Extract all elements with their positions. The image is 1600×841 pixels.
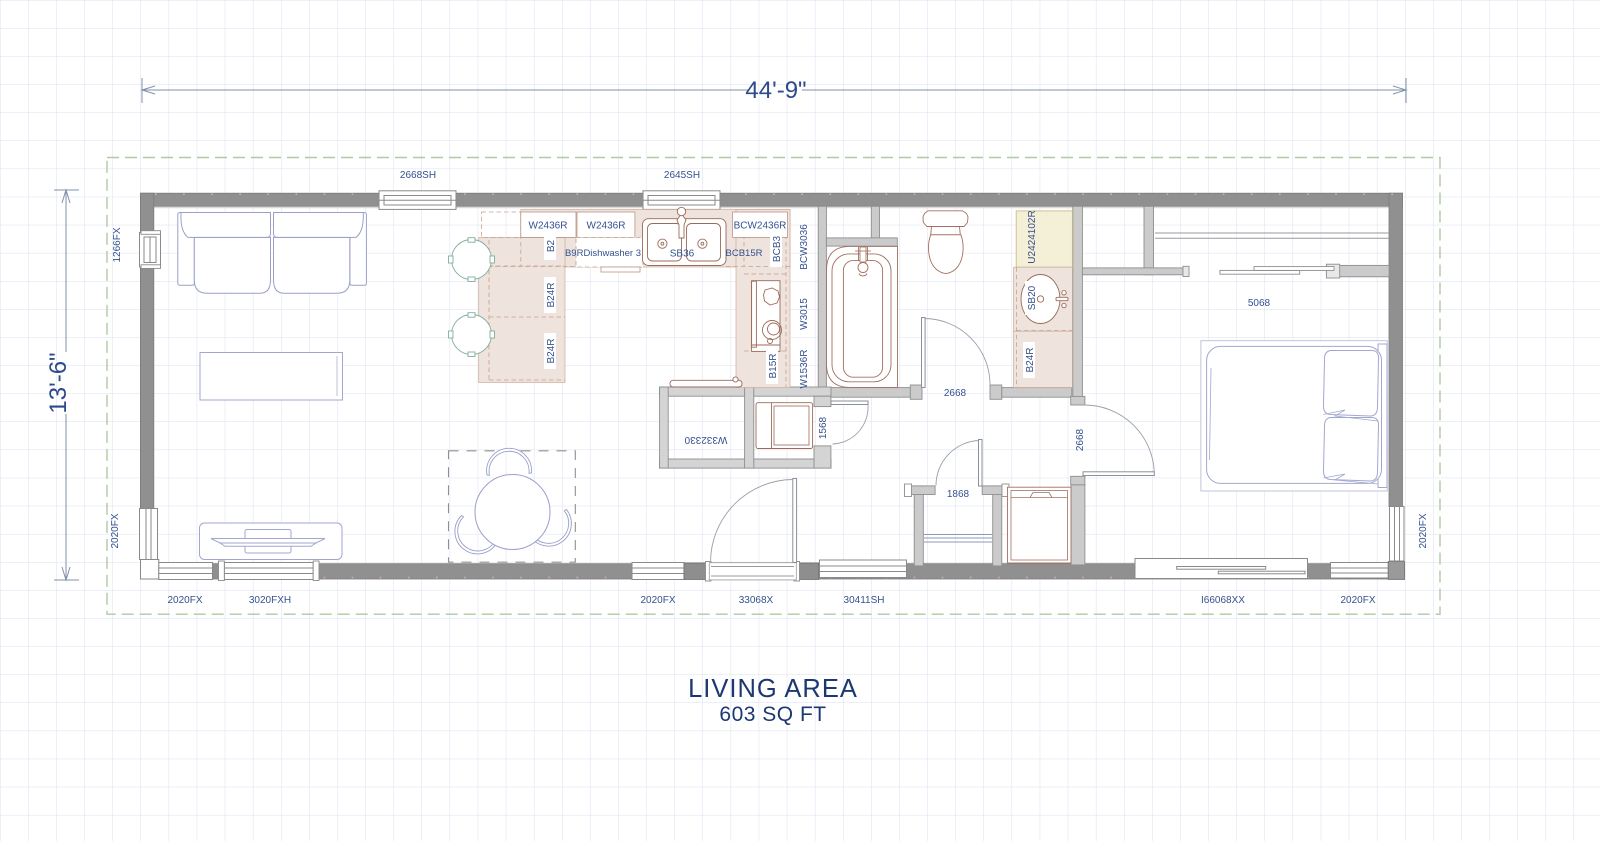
svg-text:603 SQ FT: 603 SQ FT [719,703,826,726]
svg-text:2645SH: 2645SH [664,170,700,181]
svg-text:B2: B2 [546,239,557,252]
svg-text:LIVING AREA: LIVING AREA [688,675,858,703]
svg-text:2020FX: 2020FX [640,595,675,606]
svg-text:B24R: B24R [546,338,557,363]
svg-text:3020FXH: 3020FXH [249,595,291,606]
svg-text:U2424102R: U2424102R [1027,210,1038,263]
svg-text:BCB3: BCB3 [772,236,783,263]
svg-text:1568: 1568 [818,416,829,439]
svg-text:2668SH: 2668SH [400,170,436,181]
svg-text:2668: 2668 [1075,428,1086,451]
svg-text:I66068XX: I66068XX [1201,595,1245,606]
svg-text:W2436R: W2436R [529,221,568,232]
svg-text:SB36: SB36 [670,249,695,260]
svg-text:W332330: W332330 [684,434,727,445]
svg-text:1266FX: 1266FX [112,227,123,262]
svg-text:2668: 2668 [944,388,967,399]
svg-text:W2436R: W2436R [587,221,626,232]
svg-text:BCW2436R: BCW2436R [734,221,787,232]
svg-text:SB20: SB20 [1027,285,1038,310]
svg-text:2020FX: 2020FX [110,513,121,548]
svg-text:44'-9": 44'-9" [745,77,806,104]
svg-text:W3015: W3015 [799,298,810,330]
svg-text:B24R: B24R [546,282,557,307]
svg-text:2020FX: 2020FX [1340,595,1375,606]
svg-text:5068: 5068 [1248,298,1271,309]
svg-text:BCB15R: BCB15R [726,248,763,259]
svg-text:1868: 1868 [947,489,970,500]
svg-text:BCW3036: BCW3036 [799,224,810,270]
svg-text:2020FX: 2020FX [167,595,202,606]
svg-text:W1536R: W1536R [799,350,810,389]
svg-text:2020FX: 2020FX [1418,513,1429,548]
svg-text:13'-6": 13'-6" [45,352,72,413]
svg-text:33068X: 33068X [739,595,774,606]
svg-text:B15R: B15R [768,353,779,378]
svg-text:30411SH: 30411SH [844,595,885,606]
svg-text:B9RDishwasher 3: B9RDishwasher 3 [565,248,641,259]
svg-text:B24R: B24R [1025,347,1036,372]
